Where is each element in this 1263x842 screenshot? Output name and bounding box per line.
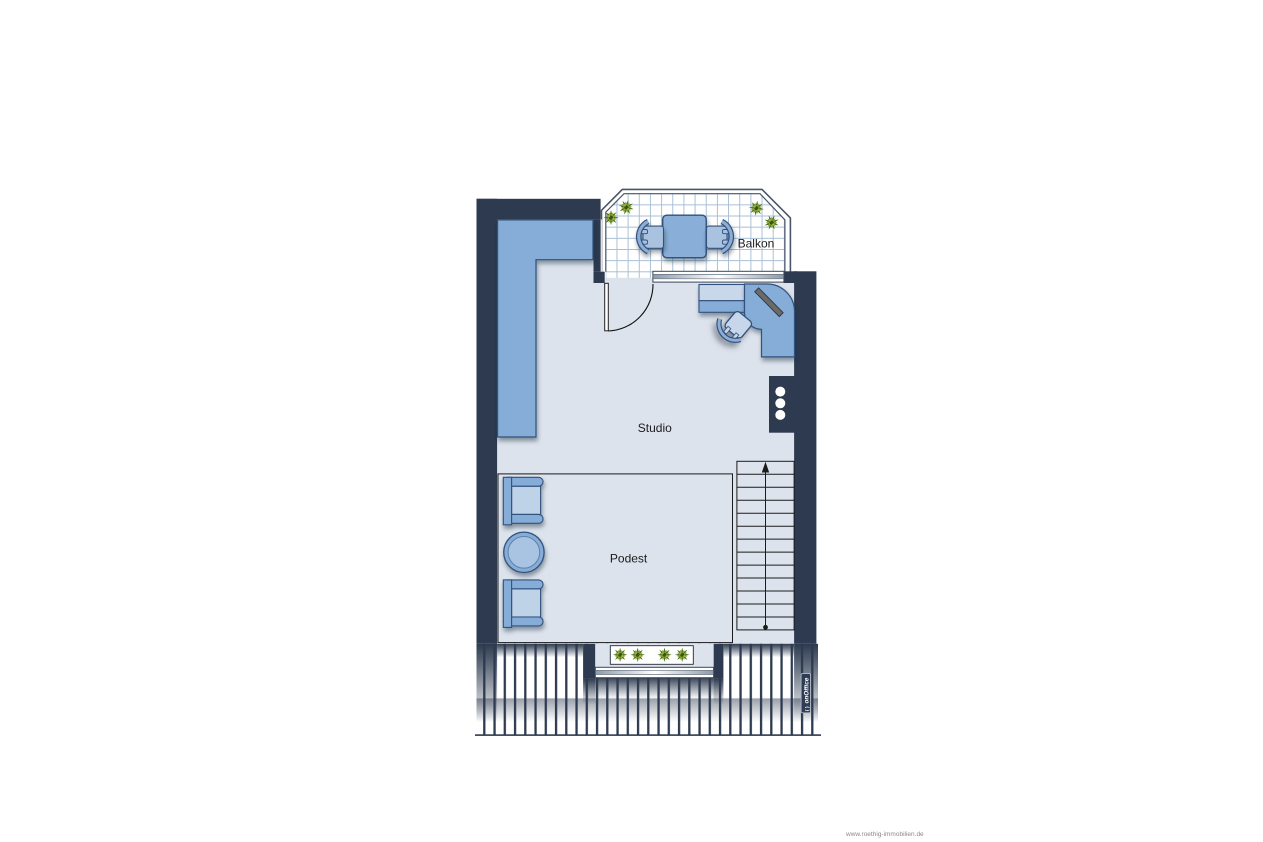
svg-text:www.roethig-immobilien.de: www.roethig-immobilien.de <box>845 831 924 838</box>
svg-text:{ }: { } <box>805 706 811 711</box>
svg-text:Balkon: Balkon <box>738 236 775 250</box>
svg-text:onOffice: onOffice <box>803 677 810 703</box>
svg-text:Studio: Studio <box>638 421 672 435</box>
svg-text:Podest: Podest <box>610 551 648 565</box>
